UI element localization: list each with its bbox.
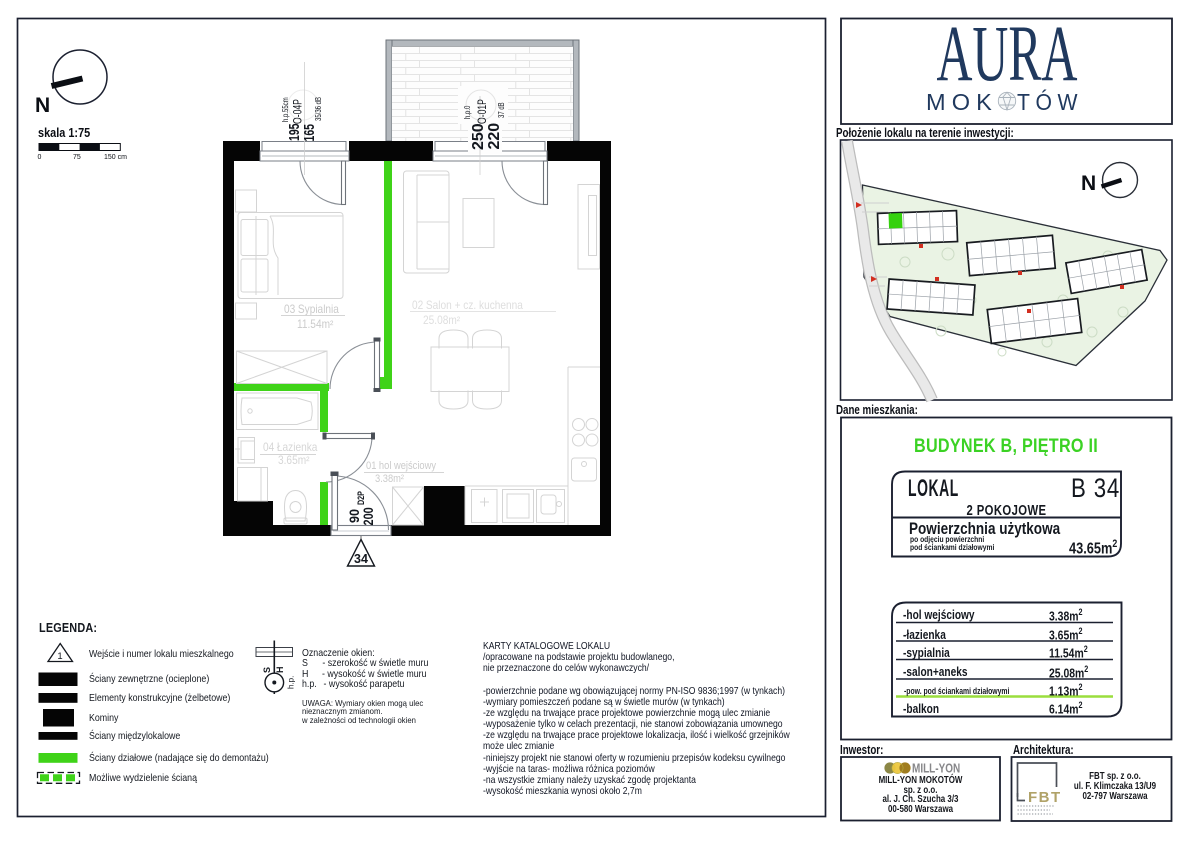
svg-text:H: H <box>275 667 285 674</box>
svg-text:O-01P: O-01P <box>477 99 490 124</box>
svg-text:35/36 dB: 35/36 dB <box>315 97 323 121</box>
svg-text:250: 250 <box>470 123 487 150</box>
svg-text:34: 34 <box>354 552 368 566</box>
svg-text:MOK: MOK <box>926 89 998 115</box>
svg-text:3.38m²: 3.38m² <box>375 473 405 485</box>
svg-text:75: 75 <box>73 154 81 161</box>
svg-text:25.08m²: 25.08m² <box>423 314 460 327</box>
svg-text:200: 200 <box>361 507 377 525</box>
svg-text:AURA: AURA <box>937 11 1078 98</box>
svg-text:02Salon + cz. kuchenna: 02Salon + cz. kuchenna <box>412 299 524 312</box>
svg-text:TÓW: TÓW <box>1017 89 1083 115</box>
svg-text:N: N <box>35 94 50 117</box>
svg-text:h.p.55cm: h.p.55cm <box>282 97 290 122</box>
svg-text:O-04P: O-04P <box>292 99 305 124</box>
svg-text:S: S <box>262 667 272 673</box>
svg-text:150 cm: 150 cm <box>104 154 127 161</box>
svg-text:37 dB: 37 dB <box>498 102 506 118</box>
svg-text:04Łazienka: 04Łazienka <box>263 441 318 454</box>
svg-text:1: 1 <box>57 651 62 662</box>
svg-text:220: 220 <box>486 123 503 150</box>
svg-text:11.54m²: 11.54m² <box>297 318 334 331</box>
svg-text:h.p.0: h.p.0 <box>464 106 472 119</box>
svg-text:01hol wejściowy: 01hol wejściowy <box>366 460 437 472</box>
svg-text:MILL-YON: MILL-YON <box>912 763 960 776</box>
svg-text:D2P: D2P <box>356 491 366 505</box>
svg-text:N: N <box>1081 172 1096 195</box>
svg-text:3.65m²: 3.65m² <box>278 454 310 467</box>
svg-text:0: 0 <box>38 154 42 161</box>
svg-text:FBT: FBT <box>1028 789 1062 806</box>
svg-text:h.p.: h.p. <box>287 676 296 689</box>
svg-text:165: 165 <box>300 124 317 142</box>
svg-text:03Sypialnia: 03Sypialnia <box>284 303 340 316</box>
